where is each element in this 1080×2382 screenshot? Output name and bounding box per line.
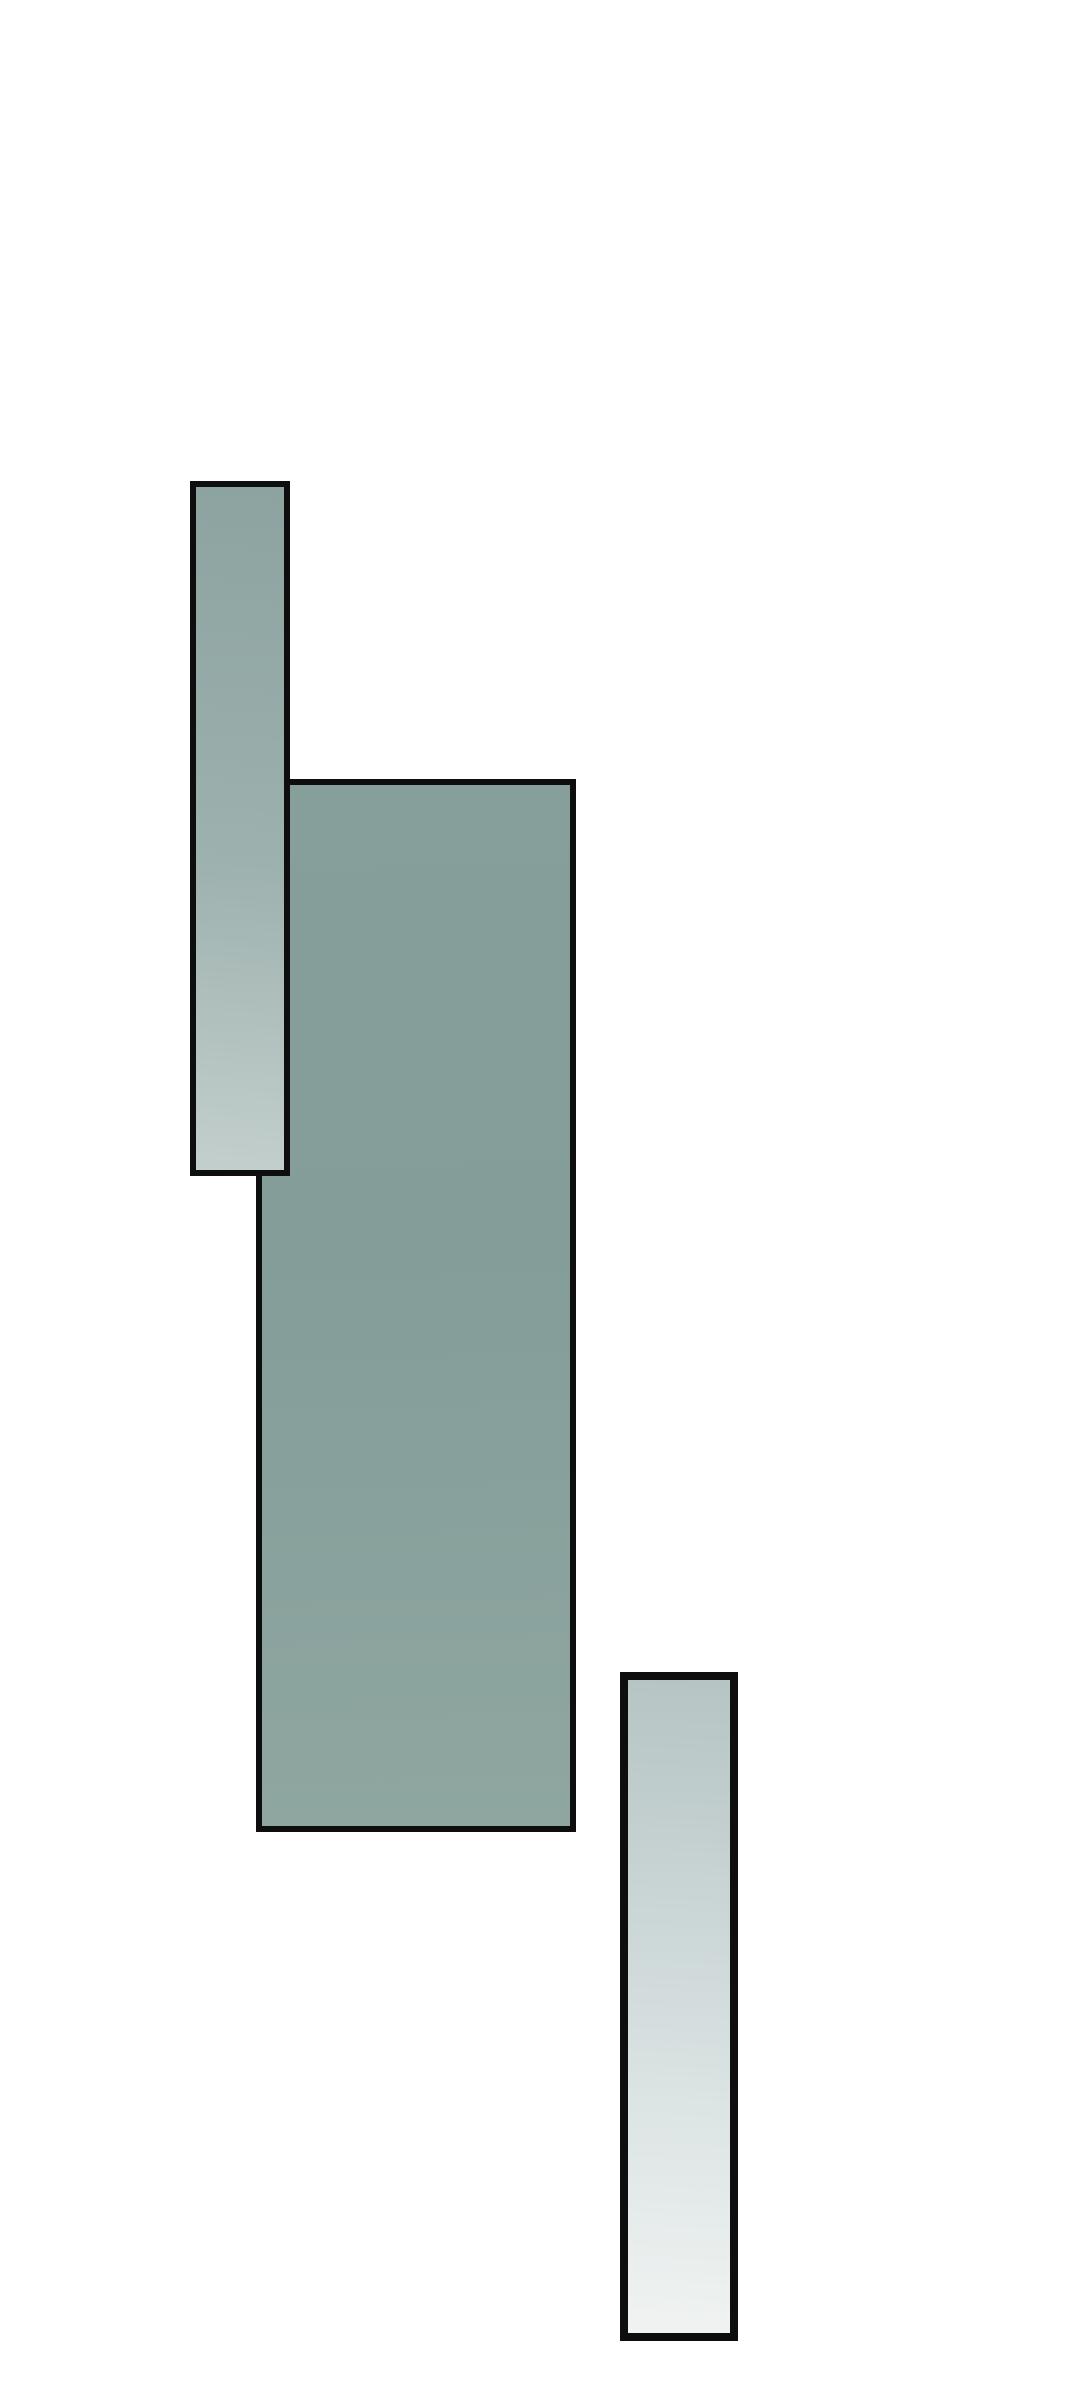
page-canvas [0, 0, 1080, 2382]
right-strip-panel [620, 1672, 738, 2341]
main-panel [256, 779, 576, 1832]
left-strip-panel [190, 481, 290, 1176]
